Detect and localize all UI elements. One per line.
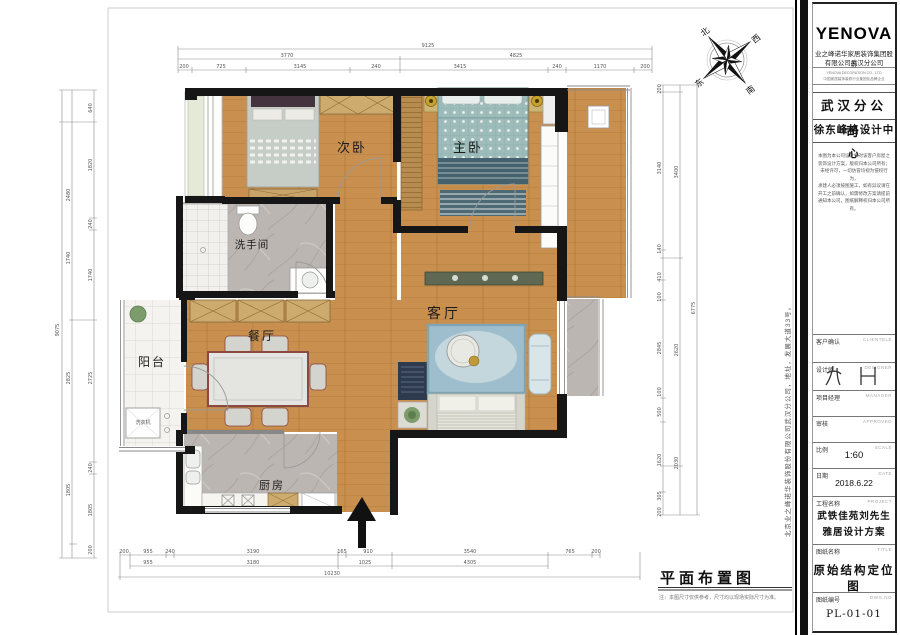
field-client: 客户确认 CLIENTELE <box>813 334 895 363</box>
divider <box>813 67 895 68</box>
room-label-kitchen: 厨房 <box>259 479 285 492</box>
dim-label: 9125 <box>422 43 435 49</box>
dim-label: 9075 <box>55 324 61 337</box>
room-label-secondary-bedroom: 次卧 <box>337 140 367 156</box>
dim-label: 955 <box>143 560 153 566</box>
dim-label: 240 <box>552 64 562 70</box>
project-name-line2: 雅居设计方案 <box>813 524 895 538</box>
dim-label: 2480 <box>66 189 72 202</box>
company-side-text: 北京业之峰诺华装饰股份有限公司武汉分公司，地址，发展大道33号。 <box>782 250 794 590</box>
dim-label: 305 <box>657 491 663 501</box>
dim-label: 2845 <box>657 342 663 355</box>
chaise <box>529 334 551 394</box>
dim-label: 3140 <box>657 162 663 175</box>
field-client-label: 客户确认 <box>816 337 840 346</box>
project-name-line1: 武铁佳苑刘先生 <box>813 508 895 522</box>
room-label-living-room: 客厅 <box>427 305 461 322</box>
dim-label: 955 <box>143 549 153 555</box>
field-approved: 审核 APPROVED <box>813 416 895 443</box>
dim-label: 1620 <box>657 454 663 467</box>
floor-plan-canvas: 次卧 主卧 洗手间 客厅 餐厅 阳台 厨房 洗衣机 北 东 南 西 <box>0 0 795 635</box>
room-label-balcony: 阳台 <box>138 354 166 369</box>
balcony-stool <box>588 106 609 128</box>
dim-label: 200 <box>88 545 94 555</box>
plan-title: 平面布置图 <box>660 569 755 587</box>
field-approved-label: 审核 <box>816 419 828 428</box>
yenova-logo: YENOVA <box>813 24 895 44</box>
divider <box>813 84 895 85</box>
title-block-content: YENOVA 业之峰诺华家居装饰集团股份 有限公司武汉分公司 YENOVA DE… <box>812 2 897 633</box>
dim-label: 2825 <box>66 372 72 385</box>
field-drawing-title-en: TITLE <box>877 547 892 552</box>
field-approved-en: APPROVED <box>863 419 892 424</box>
dim-label: 240 <box>88 463 94 473</box>
washer-label: 洗衣机 <box>135 419 150 426</box>
branch-name: 武汉分公司 <box>813 92 895 120</box>
field-drawing-number-label: 图纸编号 <box>816 595 840 604</box>
tv-cabinet <box>398 362 427 400</box>
design-center-name: 徐东峰格设计中心 <box>813 118 895 143</box>
field-manager-label: 项目经理 <box>816 393 840 402</box>
wardrobe-master-left <box>401 90 422 210</box>
field-drawing-title-label: 图纸名称 <box>816 547 840 556</box>
headboard <box>251 95 315 107</box>
disclaimer: 本图为本公司设计师对该客户房屋之 装饰设计方案，版权归本公司所有； 未经许可，一… <box>813 152 895 212</box>
dim-label: 6775 <box>691 302 697 315</box>
room-label-master-bedroom: 主卧 <box>453 141 483 156</box>
dim-label: 1170 <box>594 64 607 70</box>
dim-label: 240 <box>88 219 94 229</box>
company-name-line2: 有限公司武汉分公司 <box>813 57 895 67</box>
dim-label: 1740 <box>66 252 72 265</box>
dim-label: 240 <box>165 549 175 555</box>
hall-cabinets <box>190 300 330 322</box>
field-manager-en: MANAGER <box>866 393 892 398</box>
dim-label: 3145 <box>294 64 307 70</box>
dim-label: 4825 <box>510 53 523 59</box>
dim-label: 140 <box>657 244 663 254</box>
dim-label: 2725 <box>88 372 94 385</box>
field-date-en: DATE <box>878 471 892 476</box>
field-drawing-number-en: DWG.NO <box>870 595 892 600</box>
dim-label: 200 <box>119 549 129 555</box>
dim-label: 1740 <box>88 269 94 282</box>
disclaimer-line: 本图为本公司设计师对该客户房屋之 <box>818 152 890 160</box>
toilet <box>239 213 257 235</box>
plant <box>130 306 146 322</box>
dim-label: 500 <box>657 407 663 417</box>
dim-label: 200 <box>179 64 189 70</box>
field-project-en: PROJECT <box>867 499 892 504</box>
title-block-border-thick <box>800 0 808 635</box>
designer-signature <box>823 364 885 388</box>
drawing-title-value: 原始结构定位图 <box>813 562 895 594</box>
dim-label: 200 <box>591 549 601 555</box>
dim-label: 3770 <box>281 53 294 59</box>
dim-label: 725 <box>216 64 226 70</box>
date-value: 2018.6.22 <box>813 478 895 488</box>
dim-label: 910 <box>363 549 373 555</box>
dim-label: 3400 <box>674 166 680 179</box>
room-label-dining-room: 餐厅 <box>248 328 276 343</box>
drawing-number-value: PL-01-01 <box>813 608 895 620</box>
dim-label: 3415 <box>454 64 467 70</box>
disclaimer-line: 未经许可，一切仿冒均视为侵权行为， <box>818 167 890 182</box>
disclaimer-line: 开工之前确认，如需修改方案请提前 <box>818 190 890 198</box>
field-client-en: CLIENTELE <box>863 337 892 342</box>
title-block-border-thin <box>795 0 797 635</box>
bay-window-left <box>185 92 222 202</box>
dim-label: 3190 <box>247 549 260 555</box>
dim-label: 10230 <box>324 571 340 577</box>
field-project-label: 工程名称 <box>816 499 840 508</box>
dim-label: 2030 <box>674 457 680 470</box>
dim-label: 200 <box>640 64 650 70</box>
disclaimer-line: 通知本公司，图纸解释权归本公司所有。 <box>818 197 890 212</box>
dim-label: 240 <box>371 64 381 70</box>
disclaimer-line: 装饰设计方案，版权归本公司所有； <box>818 160 890 168</box>
title-block: YENOVA 业之峰诺华家居装饰集团股份 有限公司武汉分公司 YENOVA DE… <box>795 0 900 635</box>
discl3aimer-line: 承建人必须按图施工，如有异议请在 <box>818 182 890 190</box>
dim-label: 3180 <box>247 560 260 566</box>
dim-label: 200 <box>657 507 663 517</box>
scale-value: 1:60 <box>813 450 895 461</box>
dim-label: 1805 <box>66 484 72 497</box>
company-tagline: 中国家居装饰装修行业集团化品牌企业 <box>817 76 891 81</box>
dim-label: 1025 <box>359 560 372 566</box>
dim-label: 100 <box>657 292 663 302</box>
dim-label: 410 <box>657 272 663 282</box>
company-name-en: YENOVA DECORATION CO., LTD <box>817 70 891 75</box>
dim-label: 765 <box>565 549 575 555</box>
field-manager: 项目经理 MANAGER <box>813 390 895 417</box>
dim-label: 640 <box>88 103 94 113</box>
dim-label: 1805 <box>88 504 94 517</box>
dim-label: 100 <box>657 387 663 397</box>
dim-label: 4305 <box>464 560 477 566</box>
plan-note: 注：本图尺寸仅供参考，尺寸均以现场实际尺寸为准。 <box>659 594 779 601</box>
room-label-bathroom: 洗手间 <box>235 238 270 251</box>
dim-label: 3540 <box>464 549 477 555</box>
dining-table <box>208 352 308 406</box>
dim-label: 2620 <box>674 344 680 357</box>
dim-label: 165 <box>337 549 347 555</box>
drawing-sheet: 次卧 主卧 洗手间 客厅 餐厅 阳台 厨房 洗衣机 北 东 南 西 <box>0 0 900 635</box>
dim-label: 1820 <box>88 159 94 172</box>
dim-label: 200 <box>657 84 663 94</box>
